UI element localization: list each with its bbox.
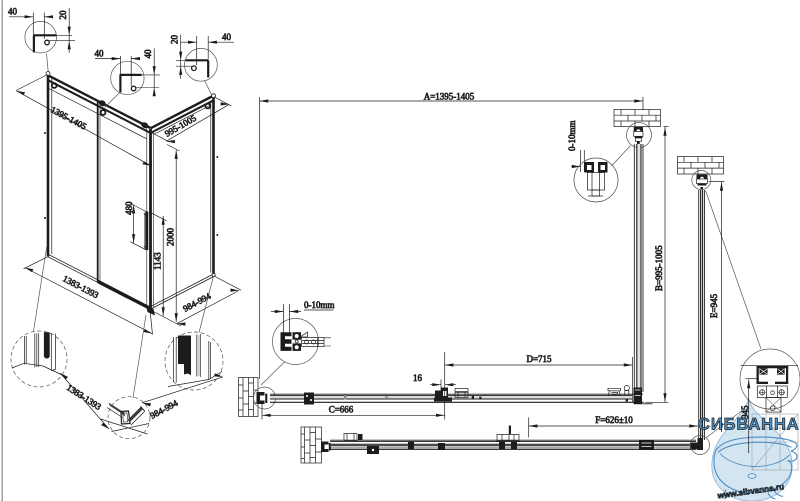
svg-text:40: 40 [8,7,18,17]
svg-text:0-10mm: 0-10mm [304,300,335,310]
svg-text:40: 40 [143,49,153,59]
svg-text:16: 16 [413,373,423,383]
svg-text:20: 20 [170,35,180,45]
svg-text:480: 480 [124,201,134,215]
svg-text:D=715: D=715 [526,354,552,364]
svg-text:СИБВАННА: СИБВАННА [698,416,800,434]
svg-text:20: 20 [58,10,68,20]
svg-text:B=995-1005: B=995-1005 [654,245,664,291]
svg-text:1143: 1143 [153,252,163,270]
svg-text:2000: 2000 [166,228,176,247]
svg-text:F=626±10: F=626±10 [595,415,633,425]
svg-text:A=1395-1405: A=1395-1405 [424,92,475,102]
svg-text:40: 40 [95,49,105,59]
svg-text:E=945: E=945 [709,293,719,318]
svg-text:40: 40 [222,32,232,42]
svg-text:0-10mm: 0-10mm [567,121,577,152]
svg-text:C=666: C=666 [329,405,354,415]
